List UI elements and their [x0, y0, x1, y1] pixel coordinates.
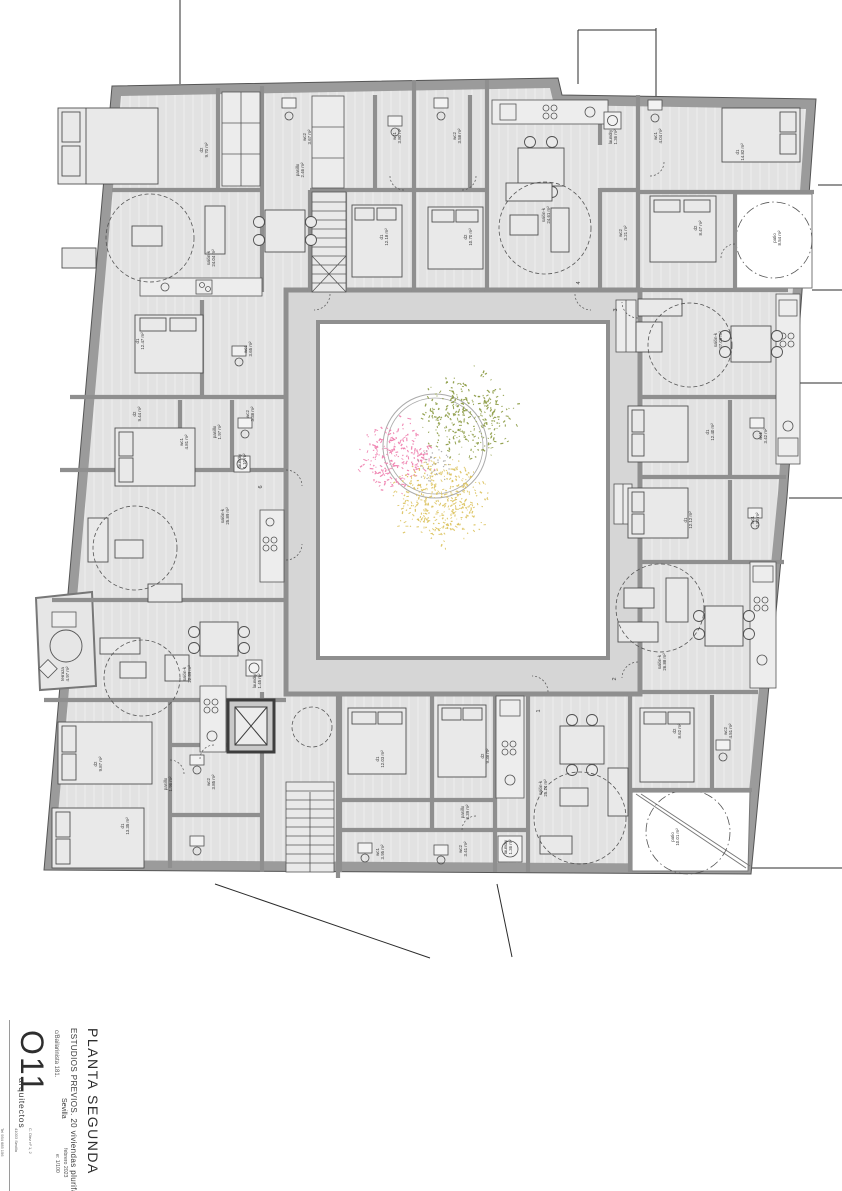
room-label: laundry1.45 m² — [252, 673, 262, 688]
apartment-number: 4 — [576, 281, 582, 284]
apartment-number: 2 — [612, 677, 618, 680]
bed — [348, 708, 406, 774]
room-label: salón-k25.17 m² — [538, 779, 548, 797]
bed — [650, 196, 716, 262]
bed — [722, 108, 800, 162]
project-city: Sevilla — [60, 1098, 67, 1119]
room-label: laundry1.10 m² — [237, 453, 247, 468]
room-label: pasillo3.39 m² — [460, 804, 470, 819]
patio-southeast — [632, 790, 750, 874]
bed — [628, 488, 688, 538]
apartment-number: 1 — [536, 709, 542, 712]
office-address-line: C. Diez nº 1, 2 — [27, 1128, 32, 1176]
room-label: laundry1.36 m² — [503, 839, 513, 854]
room-label: salón-k24.04 m² — [206, 249, 216, 267]
office-address-line: Tel 954 685 156 — [0, 1128, 4, 1176]
room-label: terraza4.97 m² — [60, 666, 70, 681]
bed — [428, 207, 483, 269]
bed — [135, 315, 203, 373]
room-label: laundry1.36 m² — [608, 129, 618, 144]
sheet-scale: e: 1/100 — [54, 1154, 60, 1173]
bed — [438, 705, 486, 777]
bed — [52, 808, 144, 868]
room-label: salón-k22.89 m² — [182, 665, 192, 683]
bed — [640, 708, 694, 782]
room-label: pasillo1.97 m² — [212, 424, 222, 439]
firm-logo-subtitle: arquitectos — [17, 1078, 27, 1128]
drawing-sheet: d29.70 m²wc23.67 m²pasillo2.46 m²salón-k… — [0, 0, 842, 1191]
project-title: ESTUDIOS PREVIOS. 20 viviendas plurifami… — [69, 1028, 78, 1191]
bed — [58, 108, 158, 184]
floor-plan: d29.70 m²wc23.67 m²pasillo2.46 m²salón-k… — [0, 0, 842, 1191]
project-address: c/Bailarinista 181. — [53, 1030, 59, 1077]
office-address-line: 41003 Sevilla — [13, 1128, 18, 1176]
room-label: salón-k24.61 m² — [541, 206, 551, 224]
room-label: salón-k25.89 m² — [220, 507, 230, 525]
stairs-south — [286, 782, 334, 872]
bed — [352, 205, 402, 277]
bed — [58, 722, 152, 784]
plan-title: PLANTA SEGUNDA — [85, 1028, 101, 1175]
office-address: C. Diez nº 1, 2 41003 Sevilla Tel 954 68… — [0, 1128, 41, 1176]
room-label: salón-k27.05 m² — [713, 331, 723, 349]
stairs-north — [312, 192, 346, 292]
elevator — [228, 700, 274, 752]
apartment-number: 6 — [258, 485, 264, 488]
room-label: salón-k26.88 m² — [657, 653, 667, 671]
bed — [115, 428, 195, 486]
courtyard-ring — [286, 290, 640, 694]
bed — [628, 406, 688, 462]
sheet-date: febrero 2023 — [62, 1148, 68, 1177]
room-label: pasillo2.46 m² — [295, 162, 305, 177]
apartment-number: 3 — [613, 308, 619, 311]
room-label: pasillo1.96 m² — [163, 776, 173, 791]
